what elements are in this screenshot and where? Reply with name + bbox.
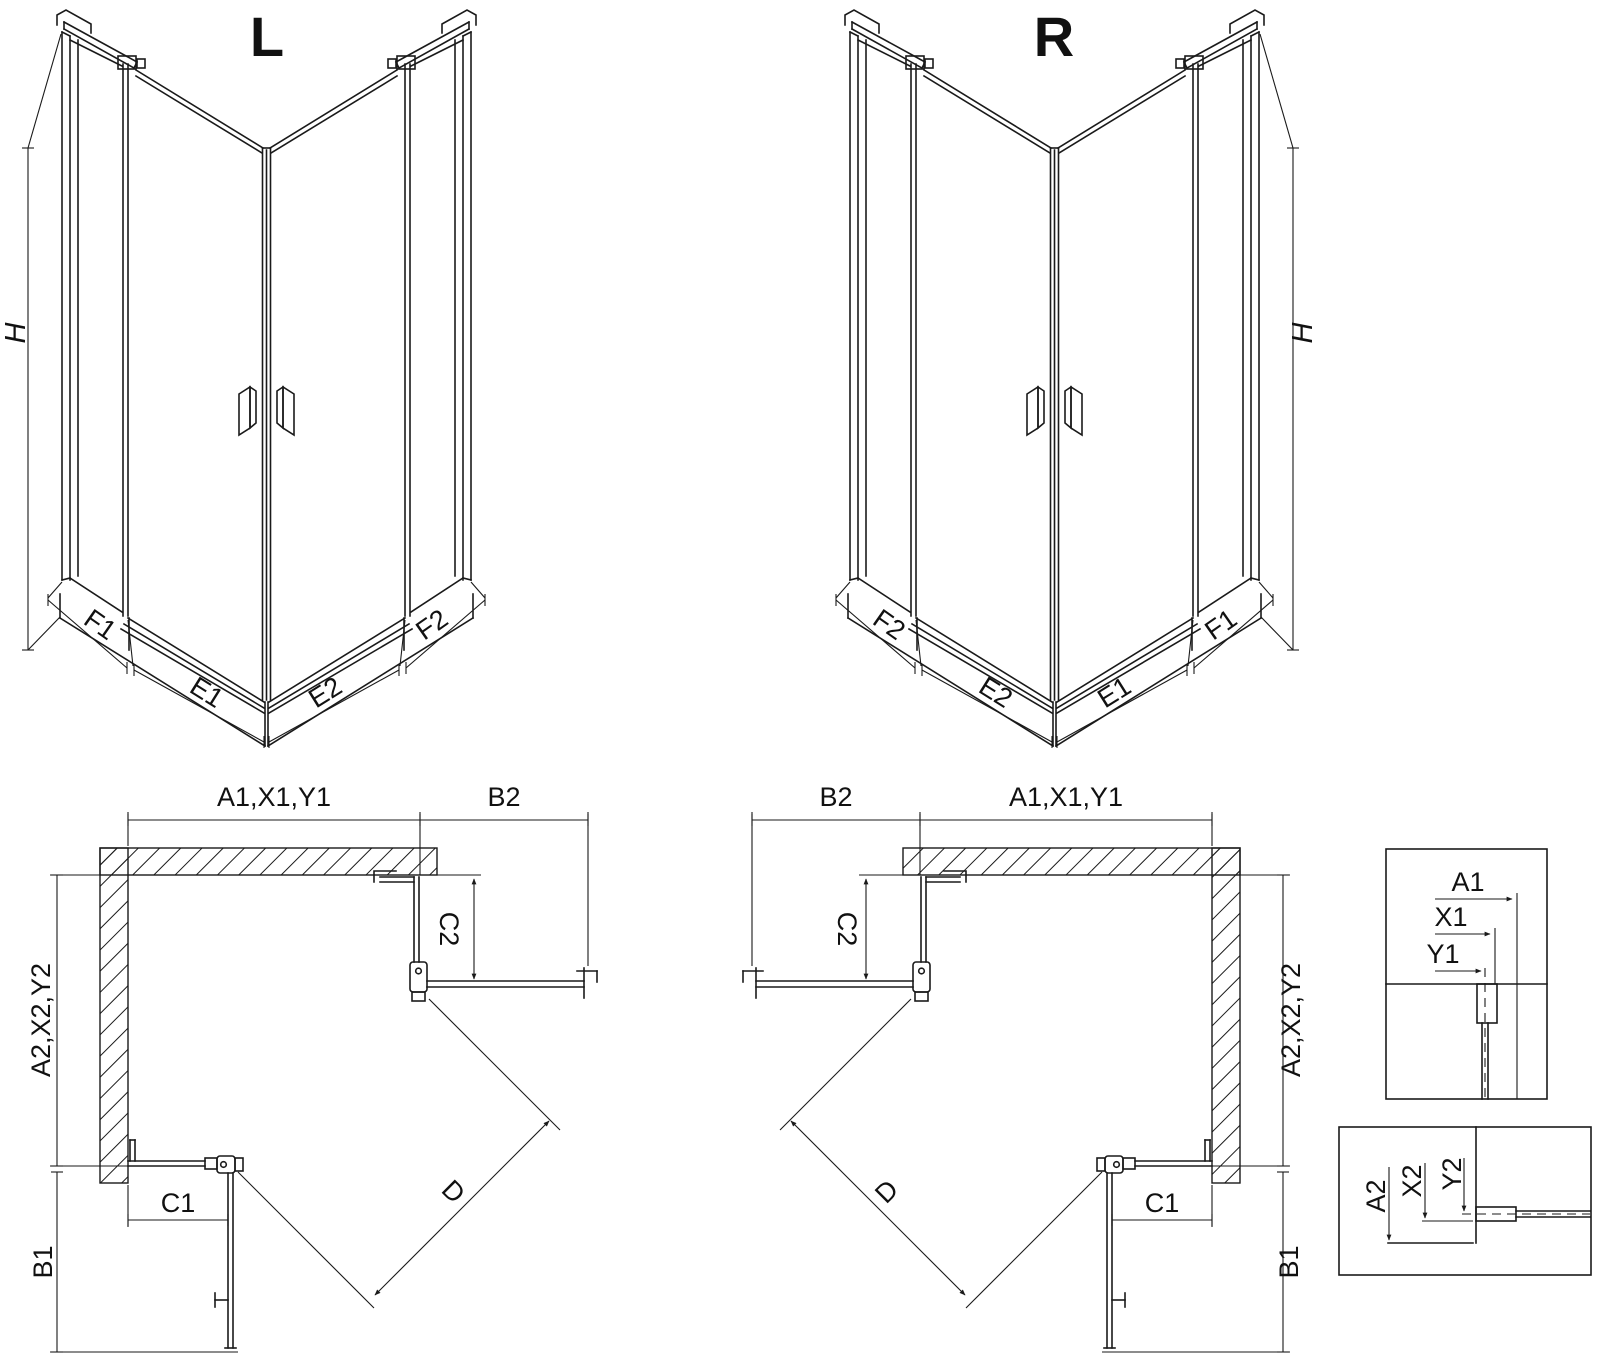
dim-label-c1-planright: C1 [1145,1188,1180,1218]
dim-label-height-left: H [0,322,32,343]
detail-label-a2: A2 [1361,1179,1391,1212]
dim-label-f1-left: F1 [79,603,122,646]
dim-label-a1x1y1-planleft: A1,X1,Y1 [217,782,331,812]
wall-right [1212,848,1240,1183]
dim-label-b2-planright: B2 [819,782,852,812]
iso-left-title: L [250,5,284,68]
wall-left [100,848,128,1183]
shower-enclosure-dimension-drawing: L H F1 E1 E2 F2 R H F2 E2 E1 F1 A1,X1,Y1… [0,0,1600,1358]
dim-label-e1-right: E1 [1092,671,1136,714]
figure-plan-left: A1,X1,Y1 B2 C2 A2,X2,Y2 C1 B1 D [26,782,597,1352]
dim-label-c2-planleft: C2 [434,912,464,947]
detail-profile-top: A1 X1 Y1 [1386,849,1547,1099]
detail-label-x2: X2 [1397,1164,1427,1197]
dim-label-height-right: H [1287,322,1319,343]
detail-profile-bottom: A2 X2 Y2 [1339,1127,1591,1275]
detail-label-y2: Y2 [1437,1157,1467,1190]
technical-diagram-page: L H F1 E1 E2 F2 R H F2 E2 E1 F1 A1,X1,Y1… [0,0,1600,1358]
dim-label-f2-left: F2 [410,603,453,646]
iso-right-title: R [1034,5,1074,68]
detail-label-y1: Y1 [1426,939,1459,969]
dim-label-e1-left: E1 [185,671,229,714]
dim-label-a2x2y2-planright: A2,X2,Y2 [1276,963,1306,1077]
dim-label-b2-planleft: B2 [487,782,520,812]
figure-iso-left: L H F1 E1 E2 F2 [0,5,485,748]
detail-label-x1: X1 [1434,902,1467,932]
dim-label-a2x2y2-planleft: A2,X2,Y2 [26,963,56,1077]
dim-label-f1-right: F1 [1199,603,1242,646]
dim-label-f2-right: F2 [868,603,911,646]
detail-label-a1: A1 [1451,867,1484,897]
dim-label-c2-planright: C2 [832,912,862,947]
dim-label-b1-planleft: B1 [28,1245,58,1278]
dim-label-b1-planright: B1 [1274,1245,1304,1278]
figure-plan-right: B2 A1,X1,Y1 C2 A2,X2,Y2 C1 B1 D [743,782,1306,1352]
dim-label-c1-planleft: C1 [161,1188,196,1218]
dim-label-a1x1y1-planright: A1,X1,Y1 [1009,782,1123,812]
figure-iso-right: R H F2 E2 E1 F1 [836,5,1319,748]
